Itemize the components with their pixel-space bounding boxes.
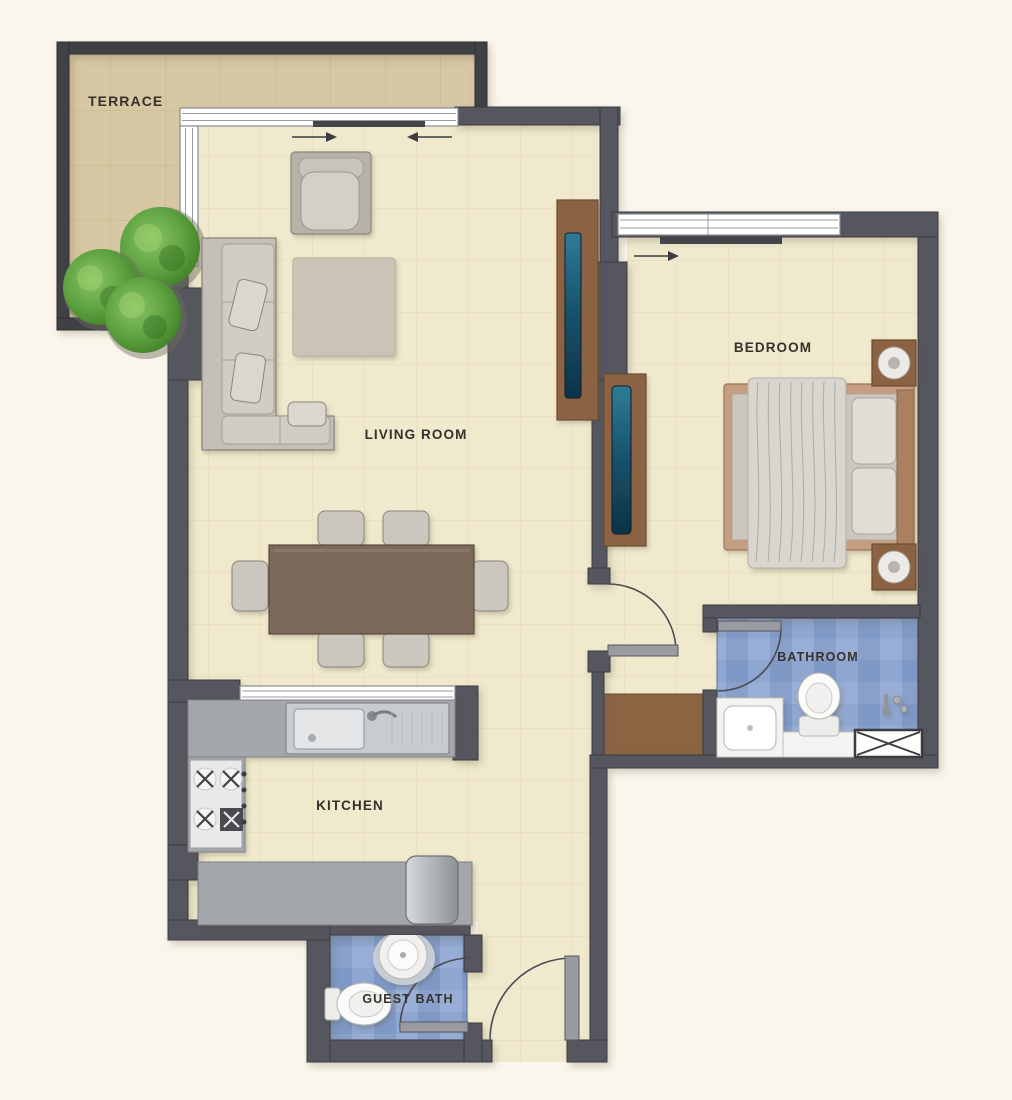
stove: [190, 760, 247, 848]
wall-segment: [703, 690, 717, 755]
dining-chair: [318, 632, 364, 667]
nightstand: [872, 544, 916, 590]
floor-plan-svg: TERRACE LIVING ROOM BEDROOM BATHROOM KIT…: [0, 0, 1012, 1100]
curtain-rail: [660, 237, 782, 244]
wall-segment: [475, 42, 487, 112]
tv-screen: [565, 233, 581, 398]
shaft-box: [855, 730, 922, 757]
armchair: [291, 152, 371, 234]
door-post: [588, 651, 610, 672]
pillow: [852, 398, 896, 464]
floor-plan: TERRACE LIVING ROOM BEDROOM BATHROOM KIT…: [0, 0, 1012, 1100]
door-post: [703, 618, 717, 632]
door-leaf: [400, 1022, 468, 1032]
guest-bath-label: GUEST BATH: [362, 992, 453, 1006]
drain: [308, 734, 316, 742]
wall-segment: [453, 686, 478, 760]
area-rug: [293, 258, 395, 356]
wall-segment: [455, 107, 620, 125]
sofa-cushion: [288, 402, 326, 426]
dining-chair: [318, 511, 364, 546]
headboard: [897, 390, 914, 544]
pillow: [852, 468, 896, 534]
door-leaf: [565, 956, 579, 1040]
dining-chair: [232, 561, 268, 611]
dining-chair: [383, 511, 429, 546]
hall-closet: [602, 694, 706, 755]
wall-segment: [595, 262, 627, 380]
wall-segment: [168, 680, 240, 702]
door-post: [464, 935, 482, 972]
wardrobe-mirror: [612, 386, 631, 534]
bedroom-label: BEDROOM: [734, 340, 812, 355]
wardrobe: [604, 374, 646, 546]
plant-bush: [105, 277, 187, 359]
dining-chair: [472, 561, 508, 611]
wall-segment: [703, 605, 920, 618]
bathroom-label: BATHROOM: [777, 650, 858, 664]
sofa-cushion: [230, 352, 266, 404]
curtain-rail: [313, 121, 425, 127]
nightstand: [872, 340, 916, 386]
door-post: [588, 568, 610, 584]
bed: [724, 378, 914, 568]
wall-segment: [600, 107, 618, 264]
toilet: [798, 673, 840, 736]
wall-segment: [57, 42, 487, 54]
door-leaf: [608, 645, 678, 656]
water-heater: [406, 856, 458, 924]
living-room-label: LIVING ROOM: [365, 427, 468, 442]
bathroom-door-gap: [703, 630, 717, 692]
entrance-threshold: [492, 1040, 567, 1062]
dining-table: [269, 545, 474, 634]
dining-chair: [383, 632, 429, 667]
kitchen-sink: [286, 703, 449, 754]
terrace-label: TERRACE: [88, 93, 163, 109]
door-leaf: [718, 621, 781, 631]
drain: [747, 725, 753, 731]
wall-segment: [590, 768, 607, 1062]
tv-unit: [557, 200, 598, 420]
bed-throw: [748, 378, 846, 568]
wall-segment: [592, 672, 604, 757]
guest-sink: [373, 931, 435, 985]
wall-segment: [567, 1040, 607, 1062]
kitchen-label: KITCHEN: [316, 798, 384, 813]
wall-segment: [918, 237, 938, 767]
